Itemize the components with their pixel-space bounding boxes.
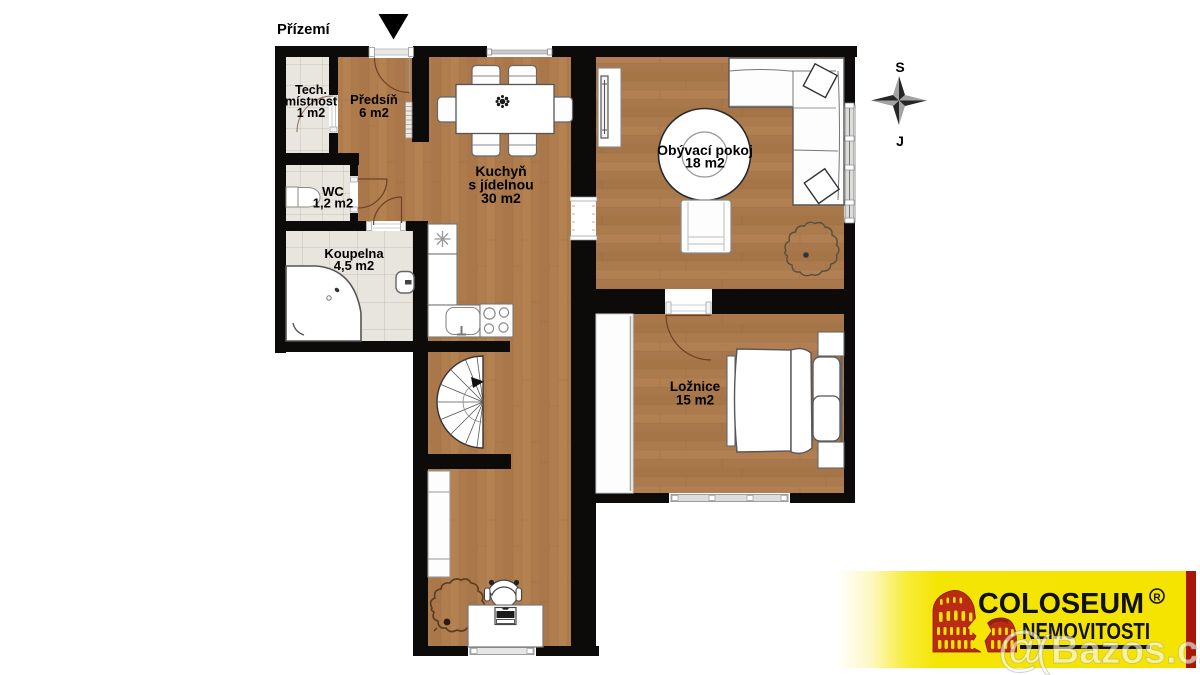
svg-text:Přízemí: Přízemí — [277, 22, 331, 38]
svg-text:Bazos.cz: Bazos.cz — [1051, 629, 1200, 672]
svg-text:R: R — [1153, 593, 1161, 604]
svg-text:COLOSEUM: COLOSEUM — [978, 588, 1144, 620]
svg-text:J: J — [896, 133, 904, 149]
svg-text:1,2 m2: 1,2 m2 — [313, 196, 353, 211]
svg-text:15 m2: 15 m2 — [676, 393, 714, 408]
svg-text:30 m2: 30 m2 — [481, 190, 521, 206]
svg-text:S: S — [895, 59, 904, 75]
svg-text:6 m2: 6 m2 — [359, 105, 389, 120]
svg-text:4,5 m2: 4,5 m2 — [334, 258, 374, 273]
svg-text:(: ( — [1036, 627, 1051, 675]
svg-text:1 m2: 1 m2 — [297, 106, 326, 120]
svg-text:18 m2: 18 m2 — [685, 155, 725, 171]
